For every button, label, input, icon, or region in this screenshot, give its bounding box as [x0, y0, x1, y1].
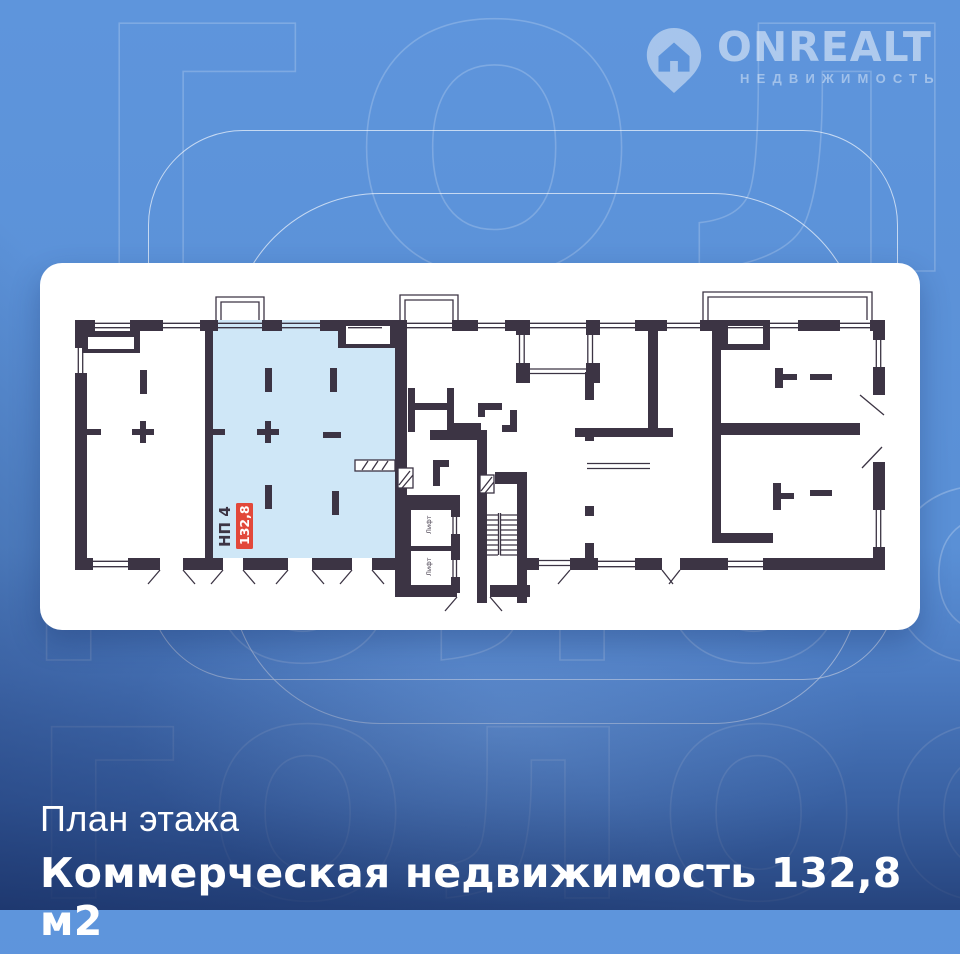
floor-plan-drawing: Лифт Лифт НП 4 132,8 — [40, 263, 920, 630]
unit-area-value: 132,8 — [237, 505, 252, 545]
elevator-label: Лифт — [425, 515, 433, 534]
wall-insets — [88, 326, 763, 577]
caption-subtitle: Коммерческая недвижимость 132,8 м2 — [40, 849, 960, 945]
unit-label: НП 4 — [216, 506, 234, 547]
caption-title: План этажа — [40, 798, 960, 840]
brand-name: ONREALT — [717, 27, 941, 68]
elevator-label: Лифт — [425, 557, 433, 576]
floor-plan-card: Лифт Лифт НП 4 132,8 — [40, 263, 920, 630]
brand-subtitle: НЕДВИЖИМОСТЬ — [740, 71, 941, 86]
balcony-outlines — [216, 292, 872, 320]
onrealt-logo: ONREALT НЕДВИЖИМОСТЬ — [645, 27, 941, 93]
post-background: { "watermark": { "text": "ГОЛОС" }, "log… — [0, 0, 960, 910]
map-pin-house-icon — [645, 27, 703, 93]
caption-block: План этажа Коммерческая недвижимость 132… — [40, 798, 960, 945]
walls — [75, 320, 885, 603]
